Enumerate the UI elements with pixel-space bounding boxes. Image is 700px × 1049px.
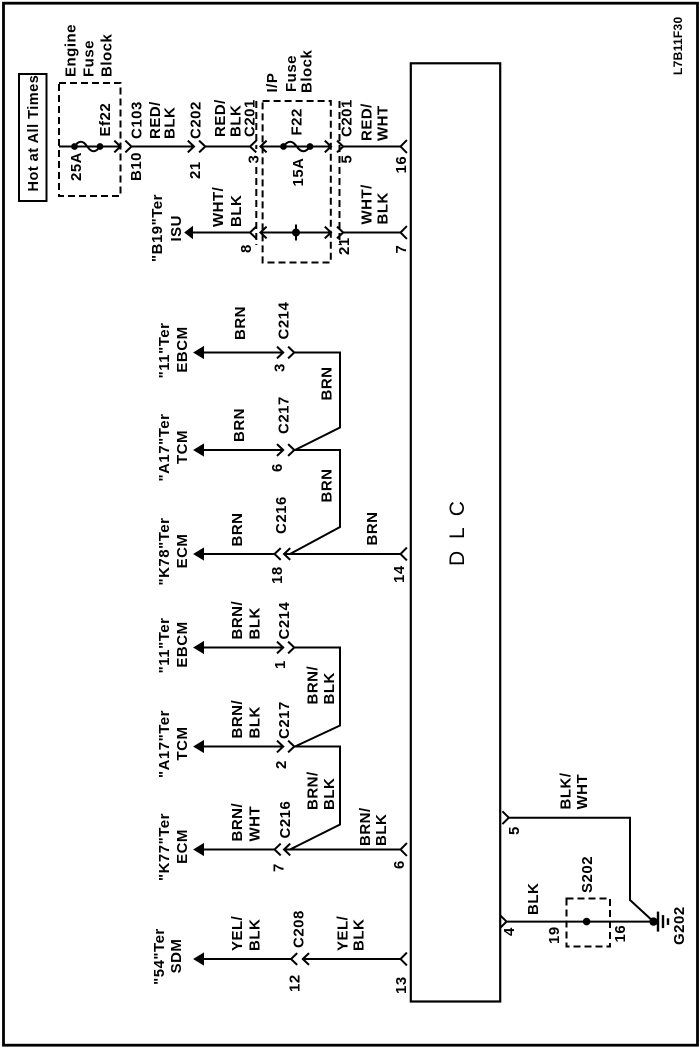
svg-text:"B19"Ter: "B19"Ter — [149, 194, 166, 262]
svg-text:BLK: BLK — [321, 778, 338, 810]
svg-text:EBCM: EBCM — [174, 621, 191, 667]
svg-text:"K77"Ter: "K77"Ter — [156, 813, 173, 881]
svg-text:7: 7 — [393, 245, 410, 254]
svg-text:D L C: D L C — [446, 498, 469, 566]
svg-text:16: 16 — [612, 925, 629, 943]
svg-text:3: 3 — [246, 155, 263, 164]
svg-text:"A17"Ter: "A17"Ter — [156, 710, 173, 778]
svg-text:B10: B10 — [128, 152, 145, 181]
svg-text:BLK/: BLK/ — [558, 772, 575, 809]
svg-text:2: 2 — [273, 760, 290, 769]
svg-text:YEL/: YEL/ — [335, 915, 352, 951]
svg-text:6: 6 — [269, 463, 286, 472]
svg-text:BRN: BRN — [229, 513, 246, 547]
svg-text:C214: C214 — [276, 301, 293, 339]
svg-text:BRN: BRN — [231, 408, 248, 442]
svg-text:"11"Ter: "11"Ter — [156, 618, 173, 674]
svg-text:RED/: RED/ — [212, 99, 229, 137]
svg-text:C216: C216 — [273, 496, 290, 534]
svg-text:5: 5 — [339, 155, 356, 164]
svg-text:BLK: BLK — [373, 814, 390, 846]
svg-text:ISU: ISU — [168, 215, 185, 242]
svg-text:BRN: BRN — [319, 367, 336, 401]
svg-text:BRN/: BRN/ — [357, 807, 374, 846]
svg-text:"11"Ter: "11"Ter — [156, 323, 173, 379]
svg-text:BLK: BLK — [351, 919, 368, 951]
svg-text:BLK: BLK — [162, 107, 179, 139]
svg-text:4: 4 — [501, 927, 518, 936]
svg-text:C216: C216 — [277, 801, 294, 839]
svg-text:14: 14 — [391, 565, 408, 583]
svg-text:BRN/: BRN/ — [305, 771, 322, 810]
svg-text:EBCM: EBCM — [174, 326, 191, 372]
svg-text:G202: G202 — [671, 906, 688, 945]
svg-text:WHT: WHT — [247, 806, 264, 842]
svg-text:1: 1 — [272, 660, 289, 669]
svg-text:"54"Ter: "54"Ter — [151, 928, 168, 985]
svg-text:16: 16 — [393, 156, 410, 174]
svg-text:I/P: I/P — [264, 73, 281, 93]
svg-text:BRN: BRN — [364, 512, 381, 546]
svg-text:12: 12 — [287, 974, 304, 992]
svg-text:Block: Block — [299, 49, 316, 93]
svg-text:BRN/: BRN/ — [229, 700, 246, 739]
svg-text:L7B11F30: L7B11F30 — [671, 17, 685, 75]
svg-text:"K78"Ter: "K78"Ter — [156, 518, 173, 586]
svg-text:6: 6 — [391, 860, 408, 869]
svg-text:BLK: BLK — [525, 883, 542, 915]
svg-text:SDM: SDM — [168, 939, 185, 974]
svg-text:C103: C103 — [129, 101, 146, 139]
svg-text:BLK: BLK — [228, 195, 245, 227]
svg-text:TCM: TCM — [174, 726, 191, 760]
svg-text:C214: C214 — [276, 601, 293, 639]
svg-text:C201: C201 — [339, 99, 356, 137]
svg-text:S202: S202 — [579, 856, 596, 893]
svg-text:21: 21 — [187, 161, 204, 179]
svg-text:WHT/: WHT/ — [359, 184, 376, 225]
svg-text:TCM: TCM — [174, 430, 191, 464]
svg-text:WHT: WHT — [375, 105, 392, 141]
svg-text:BLK: BLK — [247, 706, 264, 738]
svg-text:BRN/: BRN/ — [305, 666, 322, 705]
svg-text:BLK: BLK — [321, 672, 338, 704]
svg-text:5: 5 — [506, 826, 523, 835]
svg-text:"A17"Ter: "A17"Ter — [156, 414, 173, 482]
svg-text:15A: 15A — [290, 157, 307, 186]
svg-text:ECM: ECM — [174, 534, 191, 569]
svg-text:Fuse: Fuse — [283, 55, 300, 92]
svg-text:BLK: BLK — [375, 192, 392, 224]
svg-text:BRN/: BRN/ — [229, 601, 246, 640]
svg-text:21: 21 — [336, 237, 353, 255]
svg-text:Block: Block — [99, 33, 116, 77]
svg-text:7: 7 — [271, 863, 288, 872]
svg-text:C202: C202 — [188, 101, 205, 139]
svg-text:ECM: ECM — [174, 829, 191, 864]
svg-text:BLK: BLK — [247, 919, 264, 951]
svg-text:Ef22: Ef22 — [97, 103, 114, 137]
svg-text:WHT: WHT — [574, 774, 591, 810]
svg-text:18: 18 — [269, 566, 286, 584]
svg-text:BLK: BLK — [247, 607, 264, 639]
svg-text:Hot at All Times: Hot at All Times — [26, 75, 42, 192]
svg-text:Fuse: Fuse — [81, 40, 98, 77]
svg-text:BRN: BRN — [319, 469, 336, 503]
svg-text:C217: C217 — [276, 701, 293, 739]
svg-text:13: 13 — [393, 976, 410, 994]
svg-text:RED/: RED/ — [359, 103, 376, 141]
svg-text:YEL/: YEL/ — [229, 915, 246, 951]
svg-text:BRN: BRN — [232, 306, 249, 340]
svg-text:19: 19 — [546, 926, 563, 944]
svg-text:8: 8 — [238, 244, 255, 253]
svg-text:Engine: Engine — [63, 24, 80, 77]
svg-text:BRN/: BRN/ — [229, 803, 246, 842]
svg-text:C217: C217 — [276, 396, 293, 434]
svg-text:F22: F22 — [289, 108, 306, 135]
svg-text:C208: C208 — [291, 910, 308, 948]
svg-text:3: 3 — [272, 363, 289, 372]
svg-text:25A: 25A — [68, 152, 85, 181]
svg-text:WHT/: WHT/ — [210, 186, 227, 227]
